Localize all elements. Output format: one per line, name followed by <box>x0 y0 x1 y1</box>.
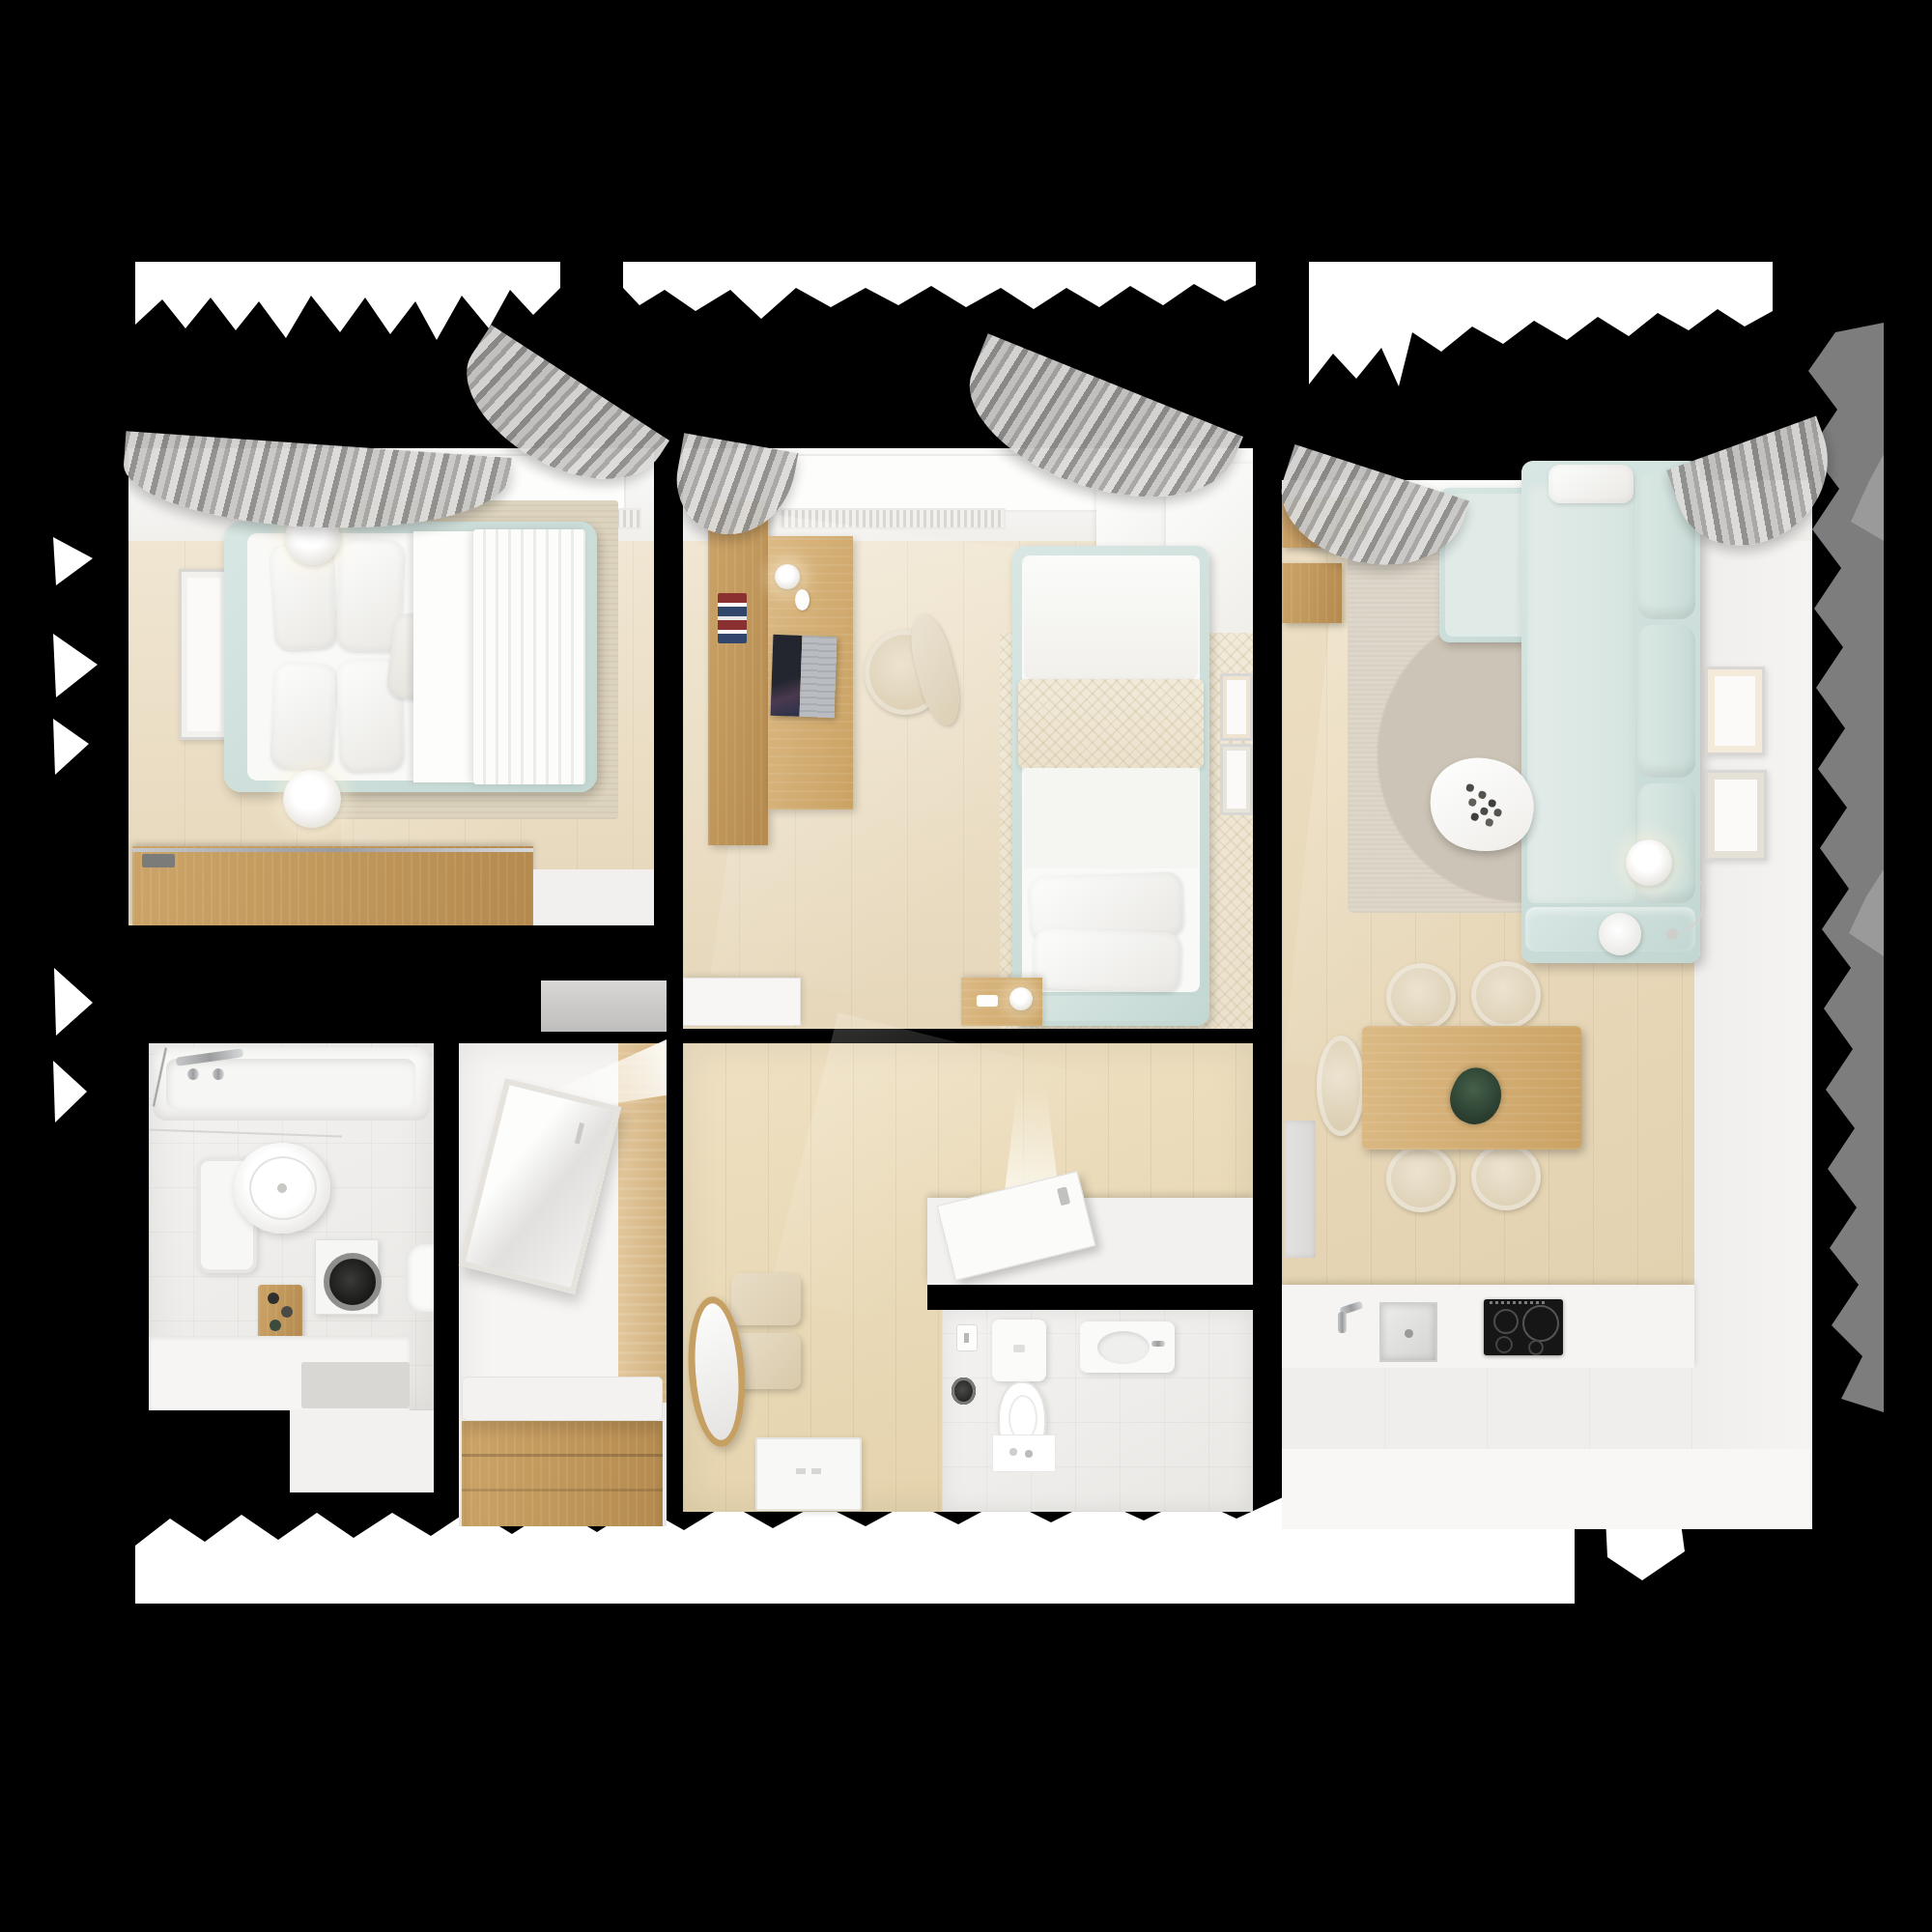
torn-left-speck <box>53 719 89 775</box>
hall-bench-cushion <box>731 1273 801 1325</box>
closet-bench-drawers <box>462 1421 663 1526</box>
sink-drain <box>1405 1329 1413 1338</box>
bath-handle <box>213 1068 224 1080</box>
washing-machine-door <box>324 1253 382 1311</box>
bath-mat <box>301 1362 410 1408</box>
bedroom-wardrobe <box>132 846 533 925</box>
room-hallway <box>683 1043 1253 1512</box>
kids-radiator <box>780 508 1006 529</box>
floor-lamp-head <box>1626 839 1672 886</box>
wardrobe-sliding-rail <box>132 848 533 852</box>
bedroom-floor-step <box>533 869 654 925</box>
bedroom-door-threshold <box>541 980 667 1032</box>
switch-toggle <box>964 1333 969 1343</box>
closet-bench-cushion <box>462 1377 663 1421</box>
side-table <box>1599 913 1641 955</box>
bathroom-toilet <box>406 1244 434 1312</box>
kids-wall-frame <box>1220 673 1253 741</box>
door-handle <box>1057 1186 1070 1206</box>
living-doorway <box>1284 1121 1316 1258</box>
flush-button <box>1013 1345 1025 1352</box>
room-entry-closet <box>459 1043 667 1526</box>
torn-top-right <box>1309 262 1773 386</box>
kitchen-cabinet-front <box>1282 1368 1694 1449</box>
nightstand-phone <box>977 995 998 1007</box>
room-kids-bedroom <box>683 448 1253 1029</box>
toiletry-bottles <box>268 1293 279 1304</box>
mirror-handle <box>575 1122 584 1145</box>
kitchen-sink <box>1379 1302 1437 1362</box>
cooktop-burner <box>1522 1305 1559 1342</box>
wc-toilet-cistern <box>992 1320 1046 1381</box>
desk-lamp <box>775 564 800 589</box>
wc-wall <box>927 1285 1253 1310</box>
dining-chair <box>1386 1145 1456 1212</box>
torn-left-speck <box>53 634 98 697</box>
bed-pillow <box>270 661 337 770</box>
drawer-seam <box>462 1454 663 1457</box>
bedroom-wall-art <box>179 569 229 740</box>
wardrobe-handle <box>142 854 175 867</box>
room-wc <box>942 1310 1253 1512</box>
washing-machine <box>315 1239 379 1315</box>
dining-chair <box>1317 1036 1365 1136</box>
floor-lamp-base <box>1666 928 1678 940</box>
basin-tap <box>1151 1341 1165 1347</box>
basin-bowl <box>1097 1331 1150 1364</box>
bedside-lamp <box>283 770 341 828</box>
cooktop-burner <box>1493 1309 1519 1334</box>
sofa-lumbar-pillow <box>1548 465 1634 503</box>
table-plant <box>1441 1061 1510 1132</box>
wc-light-switch <box>956 1324 978 1351</box>
room-bathroom <box>149 1043 434 1410</box>
drawer-seam <box>462 1489 663 1492</box>
vessel-sink <box>234 1143 330 1234</box>
dining-chair <box>1471 961 1541 1029</box>
single-bed-pillow <box>1033 927 1181 992</box>
kitchen-counter <box>1282 1285 1694 1368</box>
torn-left-speck <box>54 968 93 1036</box>
single-bed <box>1012 546 1209 1026</box>
kitchen-floor-strip <box>1282 1449 1812 1529</box>
wc-mat <box>992 1435 1056 1472</box>
living-wall-shelf <box>1282 563 1342 623</box>
coffee-table-decor <box>1465 783 1475 793</box>
wc-accessory <box>952 1378 976 1405</box>
dining-chair <box>1386 963 1456 1031</box>
torn-left-speck <box>53 1061 87 1122</box>
laptop <box>771 635 838 718</box>
kids-bookshelf-cabinet <box>708 500 768 845</box>
dining-table <box>1362 1026 1581 1150</box>
sink-drain <box>277 1183 287 1193</box>
dining-chair <box>1471 1143 1541 1210</box>
double-bed <box>224 522 597 792</box>
cooktop-burner <box>1528 1340 1544 1355</box>
living-wall-art <box>1705 770 1767 861</box>
kitchen-faucet-base <box>1338 1312 1347 1333</box>
room-master-bedroom <box>128 448 654 925</box>
bathtub-basin <box>166 1059 415 1109</box>
single-bed-duvet <box>1024 557 1198 679</box>
door-panel-marks <box>796 1468 806 1474</box>
bed-folded-sheet <box>413 531 473 782</box>
leaning-mirror <box>459 1078 622 1294</box>
cooktop-controls <box>1490 1301 1548 1304</box>
bath-handle <box>187 1068 199 1080</box>
sofa-back-cushion <box>1637 625 1695 778</box>
sofa-seat <box>1527 484 1635 903</box>
kids-wall-frame <box>1220 744 1253 815</box>
bed-striped-blanket <box>473 529 585 784</box>
torn-top-middle <box>623 262 1256 319</box>
wc-basin <box>1080 1321 1175 1373</box>
floor-door-panel <box>755 1437 862 1511</box>
computer-mouse <box>795 589 810 611</box>
laptop-keyboard <box>800 636 838 718</box>
single-bed-sheet <box>1024 768 1198 868</box>
single-bed-throw <box>1018 679 1204 768</box>
toiletry-caddy <box>258 1285 302 1341</box>
shower-glass-edge <box>149 1129 342 1138</box>
floorplan-canvas <box>0 0 1932 1932</box>
wc-mat-items <box>1009 1448 1017 1456</box>
cooktop-burner <box>1495 1336 1513 1353</box>
desk-books <box>718 593 747 643</box>
kitchen-cooktop <box>1484 1299 1563 1355</box>
bathroom-annex <box>290 1410 434 1492</box>
nightstand-lamp <box>1009 987 1033 1010</box>
torn-left-speck <box>53 537 93 585</box>
living-right-wall <box>1694 480 1812 1529</box>
room-living-kitchen <box>1282 480 1812 1529</box>
kids-nightstand <box>961 978 1042 1026</box>
laptop-screen <box>771 635 803 717</box>
living-wall-art <box>1705 667 1765 755</box>
kids-dresser <box>683 978 801 1026</box>
